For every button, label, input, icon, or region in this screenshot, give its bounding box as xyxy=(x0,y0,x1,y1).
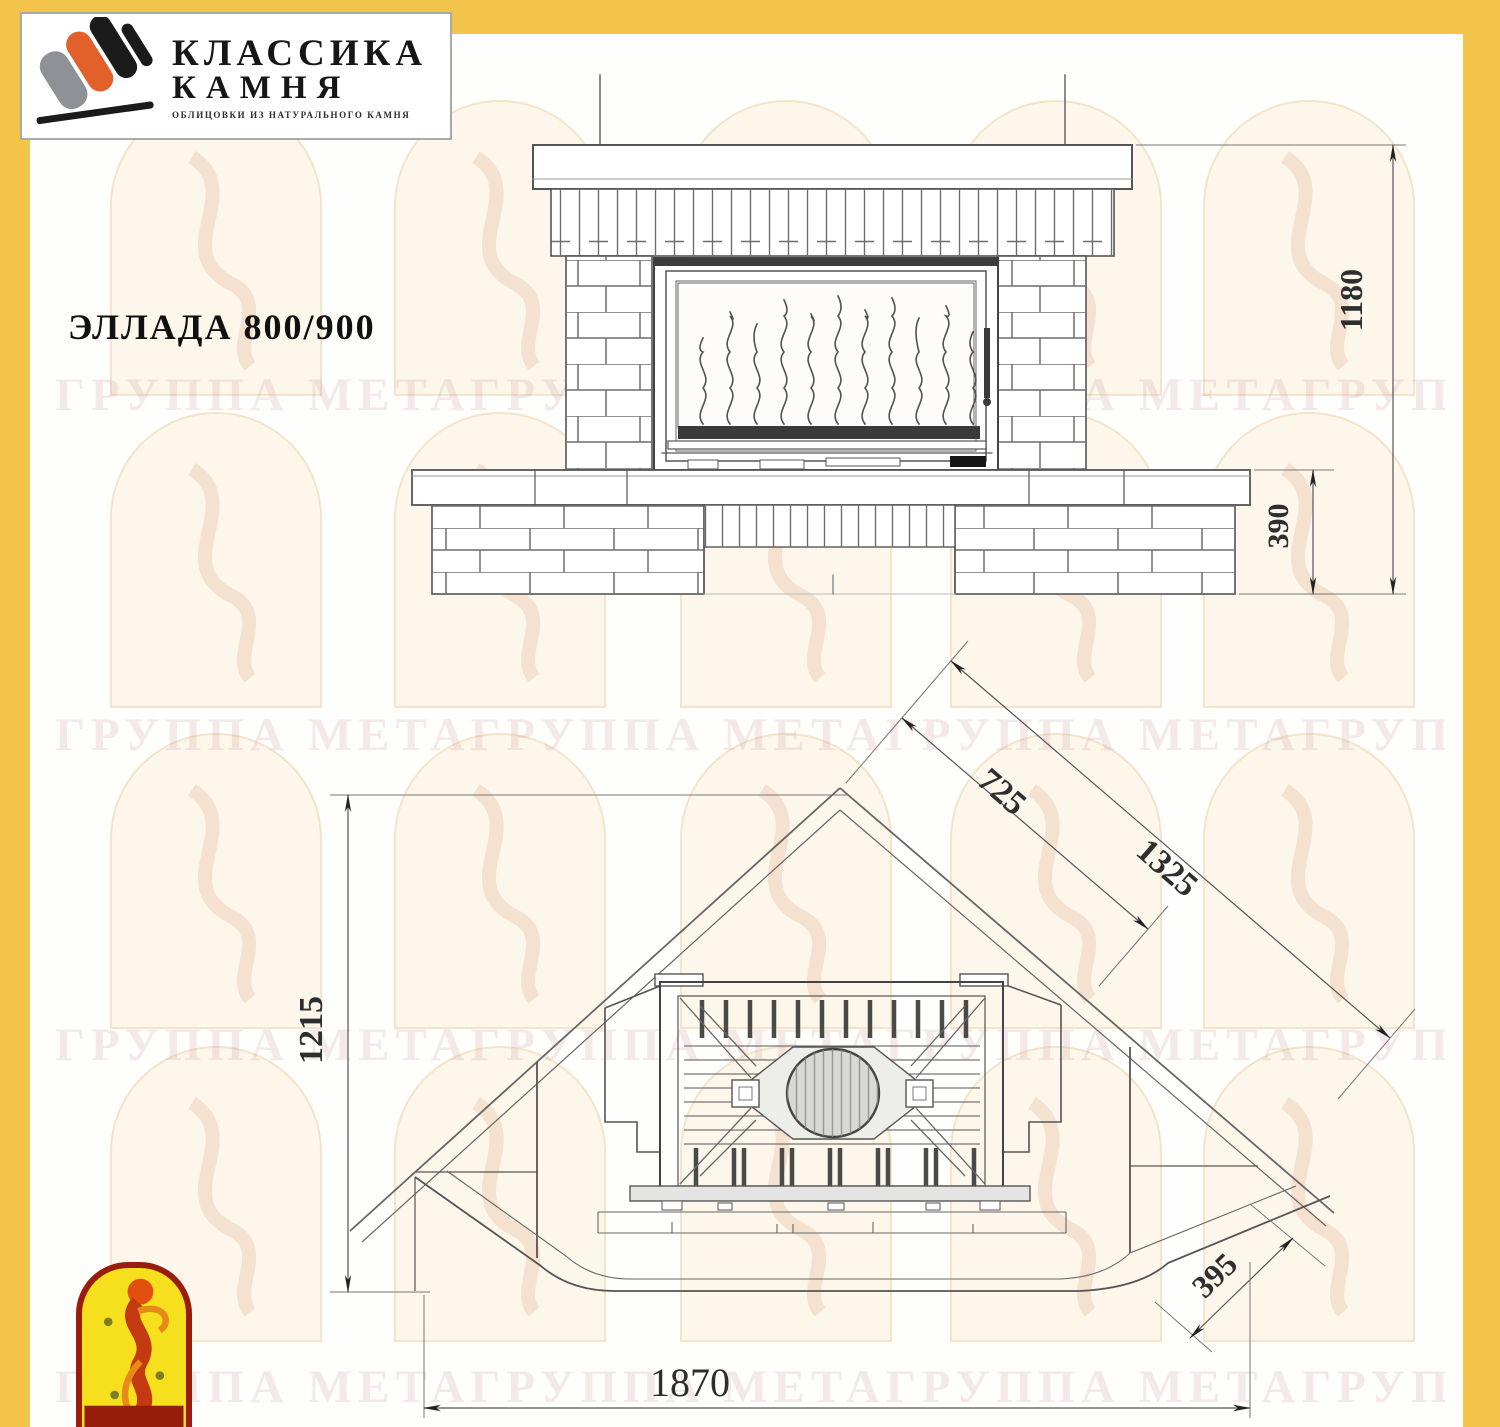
brand-name-line1: КЛАССИКА xyxy=(172,35,427,72)
grate-bar xyxy=(678,426,980,439)
page-title: ЭЛЛАДА 800/900 xyxy=(68,306,376,348)
dim-base-height: 390 xyxy=(1262,504,1295,549)
base-center-bricks xyxy=(704,505,955,547)
firebird-logo xyxy=(76,1262,192,1427)
brand-logo-icon xyxy=(22,17,172,135)
dim-corner-inner: 725 xyxy=(971,761,1034,822)
dim-total-height: 1180 xyxy=(1333,269,1369,331)
left-pier-bricks xyxy=(566,256,652,470)
brand-subtitle: ОБЛИЦОВКИ ИЗ НАТУРАЛЬНОГО КАМНЯ xyxy=(172,110,427,120)
border-left xyxy=(0,0,30,1427)
door-glass xyxy=(678,283,974,428)
dim-corner-outer: 1325 xyxy=(1129,832,1205,905)
plan-dimensions xyxy=(330,641,1415,1418)
right-pier-bricks xyxy=(998,256,1086,470)
technical-drawing: 1180 390 xyxy=(0,0,1500,1427)
plan-view-drawing: 1215 725 1325 395 1870 xyxy=(293,641,1415,1418)
firebox-door xyxy=(654,258,998,470)
brand-name-line2: КАМНЯ xyxy=(172,72,427,105)
door-latch xyxy=(950,456,986,467)
door-handle xyxy=(984,328,990,398)
dim-side: 395 xyxy=(1185,1245,1245,1304)
base-right-stone xyxy=(955,505,1235,594)
brand-logo: КЛАССИКА КАМНЯ ОБЛИЦОВКИ ИЗ НАТУРАЛЬНОГО… xyxy=(20,12,452,140)
front-elevation-drawing xyxy=(412,75,1250,594)
base-left-stone xyxy=(432,505,704,594)
firebox-insert-plan xyxy=(598,974,1066,1233)
dim-depth: 1215 xyxy=(293,996,330,1064)
border-right xyxy=(1463,0,1500,1427)
frieze-bricks xyxy=(551,189,1114,256)
mantel-shelf xyxy=(533,145,1132,189)
dim-width: 1870 xyxy=(650,1360,730,1405)
drawing-sheet: ГРУППА МЕТАГРУППА МЕТАГРУППА МЕТАГРУППА … xyxy=(0,0,1500,1427)
